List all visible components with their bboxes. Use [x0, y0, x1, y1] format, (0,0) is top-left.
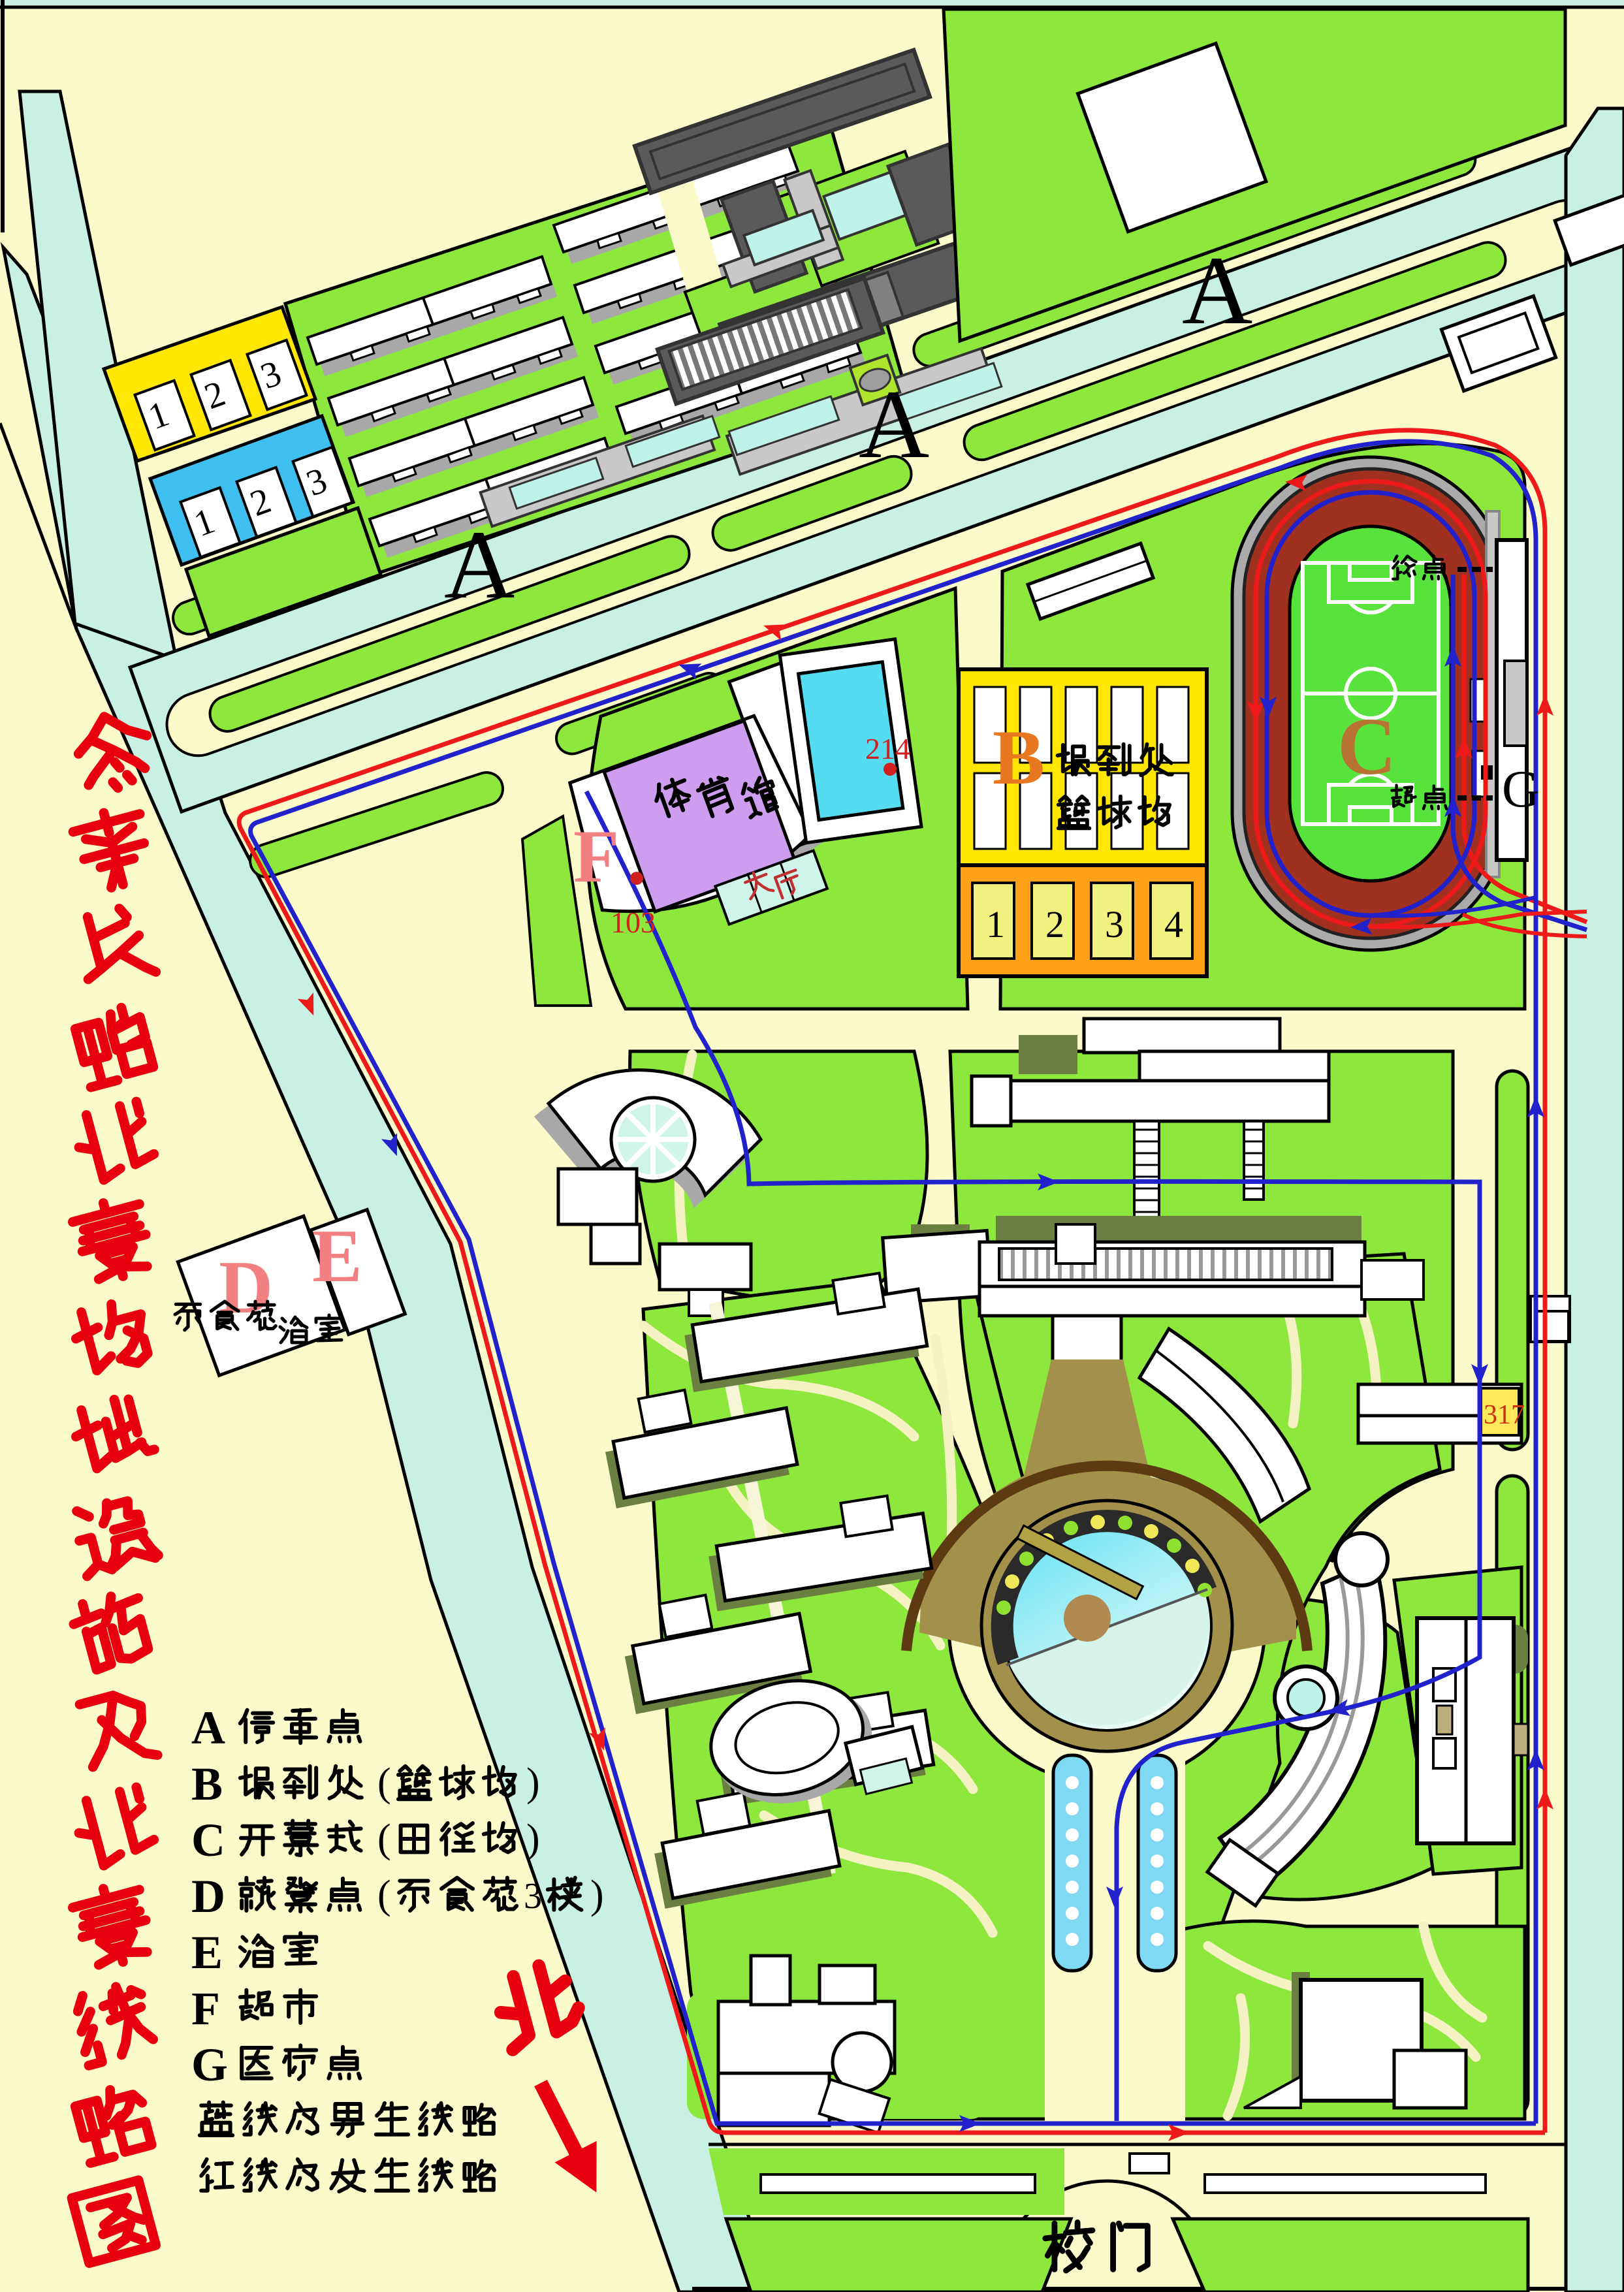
svg-text:D: D — [191, 1870, 225, 1922]
svg-text:317: 317 — [1484, 1400, 1525, 1430]
svg-text:A: A — [1182, 236, 1252, 345]
svg-text:B: B — [993, 714, 1045, 801]
svg-text:G: G — [1502, 761, 1540, 818]
svg-text:F: F — [573, 815, 619, 898]
svg-text:F: F — [191, 1982, 220, 2035]
svg-text:A: A — [191, 1702, 225, 1754]
svg-text:(: ( — [377, 1817, 391, 1861]
svg-text:3: 3 — [524, 1876, 542, 1917]
svg-text:): ) — [590, 1873, 604, 1917]
svg-text:214: 214 — [865, 732, 910, 765]
svg-text:3: 3 — [1105, 903, 1124, 946]
svg-text:2: 2 — [1045, 903, 1064, 946]
svg-text:4: 4 — [1164, 903, 1183, 946]
svg-text:G: G — [191, 2039, 228, 2091]
svg-text:103: 103 — [611, 906, 656, 939]
svg-text:A: A — [444, 511, 515, 619]
svg-text:(: ( — [377, 1873, 391, 1917]
svg-text:): ) — [526, 1760, 540, 1805]
svg-text:): ) — [526, 1817, 540, 1861]
svg-text:E: E — [312, 1215, 362, 1297]
svg-text:B: B — [191, 1758, 223, 1810]
svg-text:A: A — [859, 370, 929, 479]
svg-text:1: 1 — [986, 903, 1005, 946]
svg-text:E: E — [191, 1926, 223, 1979]
svg-text:C: C — [1337, 702, 1396, 792]
svg-text:C: C — [191, 1814, 225, 1866]
svg-text:(: ( — [377, 1760, 391, 1805]
